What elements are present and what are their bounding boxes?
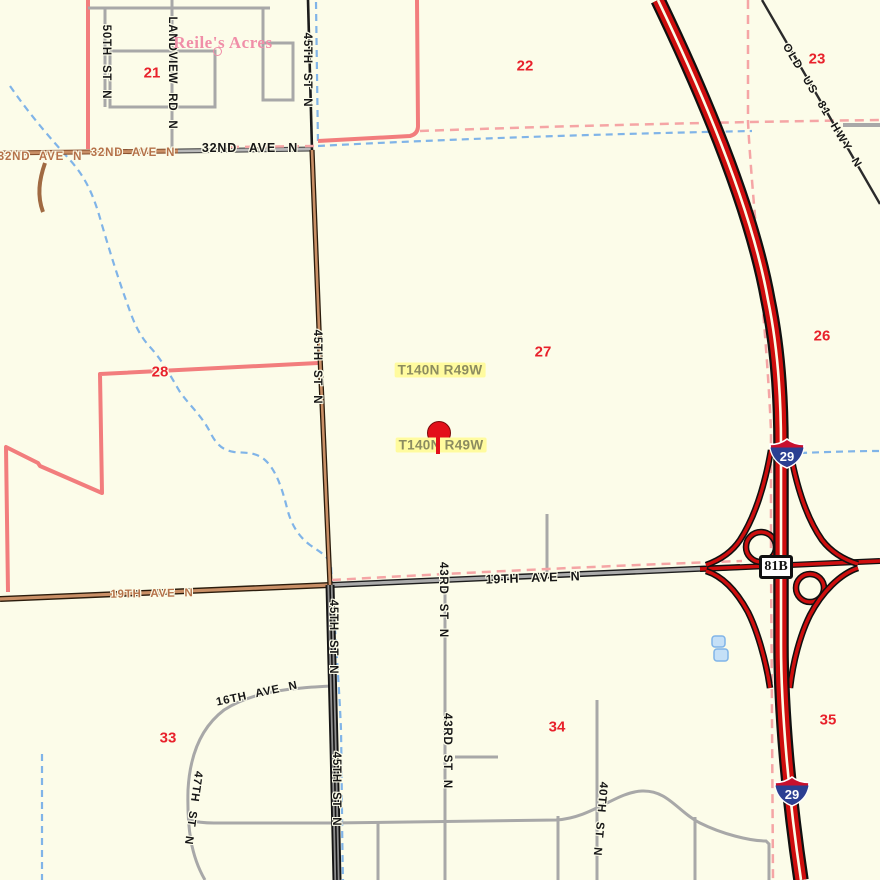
interstate-shield-number: 29 xyxy=(785,787,799,802)
interstate-shield-number: 29 xyxy=(780,449,794,464)
section-number-26: 26 xyxy=(814,328,831,345)
road-label-19th-ave-n: 19TH AVE N xyxy=(110,587,193,600)
section-number-23: 23 xyxy=(809,51,826,68)
boundary-blue-far-east xyxy=(800,451,880,453)
road-label-32nd-ave-n: 32ND AVE N xyxy=(202,141,298,155)
section-number-21: 21 xyxy=(144,65,161,82)
pond-icon xyxy=(714,649,728,661)
interstate-29-shield: 29 xyxy=(774,776,810,807)
boundary-pink-dashed xyxy=(420,0,880,880)
town-name-label: Reile's Acres xyxy=(173,33,272,53)
boundary-pink-section28 xyxy=(6,363,318,592)
road-label-45th-st-n: 45TH ST N xyxy=(330,752,342,827)
road-label-32nd-ave-n: 32ND AVE N xyxy=(91,147,175,159)
boundary-blue-45th xyxy=(316,2,318,146)
township-label: T140N R49W xyxy=(396,438,487,453)
stream-main xyxy=(10,86,343,880)
road-label-45th-st-n: 45TH ST N xyxy=(311,330,323,405)
boundary-pink-northeast xyxy=(318,0,418,141)
brown-road-arc xyxy=(39,163,45,212)
road-16th-ave-47th-st xyxy=(188,686,332,880)
township-label: T140N R49W xyxy=(395,363,486,378)
road-45th-st xyxy=(308,0,337,880)
section-number-27: 27 xyxy=(535,344,552,361)
section-number-22: 22 xyxy=(517,58,534,75)
pink-dash-east-top xyxy=(420,120,880,131)
ponds xyxy=(712,636,728,661)
road-label-45th-st-n: 45TH ST N xyxy=(301,33,313,108)
town-point-icon xyxy=(213,47,222,56)
business-route-81b-shield: 81B xyxy=(759,555,793,579)
road-label-50th-st-n: 50TH ST N xyxy=(100,25,112,100)
pond-icon xyxy=(712,636,725,647)
road-label-32nd-ave-n: 32ND AVE N xyxy=(0,151,82,163)
section-number-35: 35 xyxy=(820,712,837,729)
city-boundary-pink xyxy=(6,0,418,592)
road-label-43rd-st-n: 43RD ST N xyxy=(441,713,453,789)
location-marker-stem xyxy=(436,436,440,454)
section-number-28: 28 xyxy=(152,364,169,381)
road-label-43rd-st-n: 43RD ST N xyxy=(437,562,449,638)
section-number-33: 33 xyxy=(160,730,177,747)
interstate-29-shield: 29 xyxy=(769,438,805,469)
road-label-45th-st-n: 45TH ST N xyxy=(327,600,339,675)
map-canvas[interactable]: Reile's Acres 21 22 23 26 27 28 33 34 35… xyxy=(0,0,880,880)
section-number-34: 34 xyxy=(549,719,566,736)
